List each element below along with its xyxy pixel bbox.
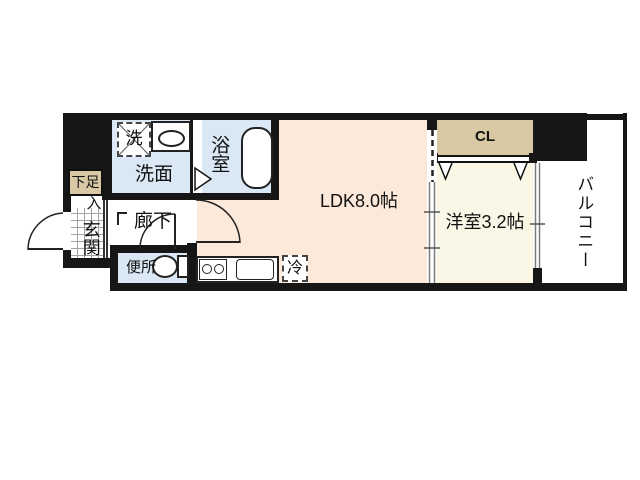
- label-balcony: バルコニー: [571, 165, 595, 279]
- label-toilet: 便所: [119, 258, 163, 278]
- label-shoe-cupboard: 下足: [68, 169, 103, 196]
- label-western-room: 洋室3.2帖: [427, 213, 543, 233]
- label-ldk: LDK8.0帖: [299, 191, 419, 212]
- entrance-door-arc: [28, 213, 63, 250]
- entrance-door-leaf: [28, 248, 63, 250]
- label-fridge: 冷: [282, 255, 308, 282]
- ldk-door-leaf: [196, 241, 240, 243]
- label-washer: 洗: [117, 124, 151, 154]
- label-washroom: 洗面: [129, 163, 179, 187]
- label-hallway: 廊下: [124, 210, 182, 235]
- closet-chevron-left: [439, 163, 452, 179]
- label-closet: CL: [437, 128, 533, 146]
- closet-chevron-right: [514, 163, 527, 179]
- label-entrance: 玄関: [78, 211, 102, 265]
- ldk-door-arc: [196, 200, 240, 243]
- floorplan: LDK8.0帖 洋室3.2帖 CL バルコニー 浴室 洗面 洗 冷 廊下 便所 …: [0, 0, 640, 480]
- label-bathroom: 浴室: [205, 127, 231, 181]
